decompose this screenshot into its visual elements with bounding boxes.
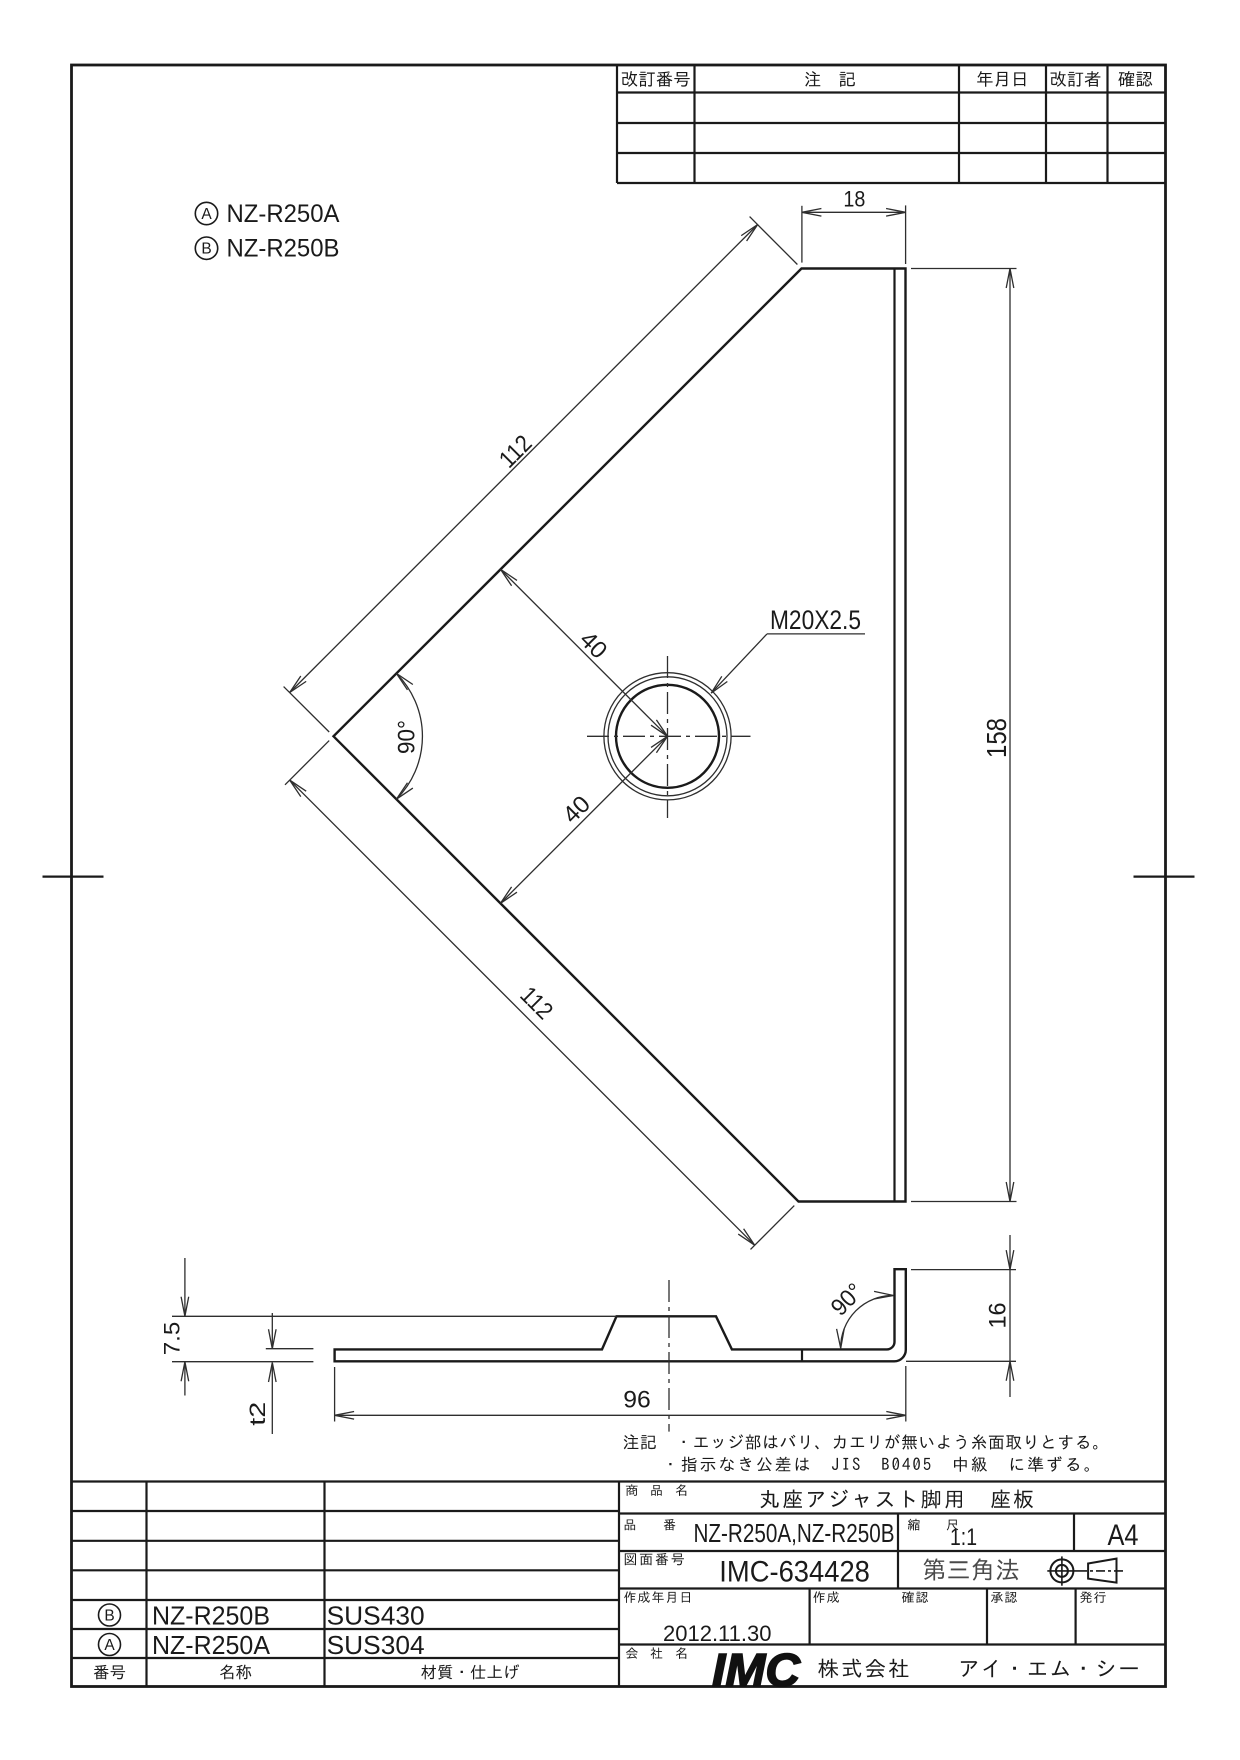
svg-text:A: A — [201, 206, 212, 223]
svg-text:96: 96 — [623, 1387, 651, 1414]
svg-text:7.5: 7.5 — [159, 1322, 184, 1356]
svg-text:t2: t2 — [245, 1402, 270, 1426]
svg-text:SUS304: SUS304 — [327, 1630, 425, 1660]
svg-text:158: 158 — [981, 718, 1012, 758]
svg-text:SUS430: SUS430 — [327, 1601, 425, 1631]
svg-text:NZ-R250A: NZ-R250A — [152, 1630, 271, 1660]
svg-text:A4: A4 — [1108, 1519, 1139, 1552]
svg-text:IMC: IMC — [712, 1644, 801, 1696]
svg-text:B: B — [201, 241, 211, 258]
svg-text:B: B — [104, 1608, 114, 1625]
svg-text:NZ-R250B: NZ-R250B — [152, 1601, 270, 1631]
svg-text:18: 18 — [843, 187, 865, 212]
svg-text:16: 16 — [984, 1303, 1011, 1329]
svg-text:2012.11.30: 2012.11.30 — [663, 1621, 771, 1646]
svg-text:A: A — [104, 1637, 115, 1654]
svg-text:NZ-R250A: NZ-R250A — [227, 200, 340, 228]
svg-text:NZ-R250B: NZ-R250B — [227, 235, 340, 263]
svg-text:IMC-634428: IMC-634428 — [719, 1556, 870, 1589]
svg-text:1:1: 1:1 — [950, 1524, 977, 1551]
svg-text:M20X2.5: M20X2.5 — [770, 605, 861, 635]
svg-text:90°: 90° — [394, 720, 421, 754]
svg-text:NZ-R250A,NZ-R250B: NZ-R250A,NZ-R250B — [694, 1518, 895, 1548]
